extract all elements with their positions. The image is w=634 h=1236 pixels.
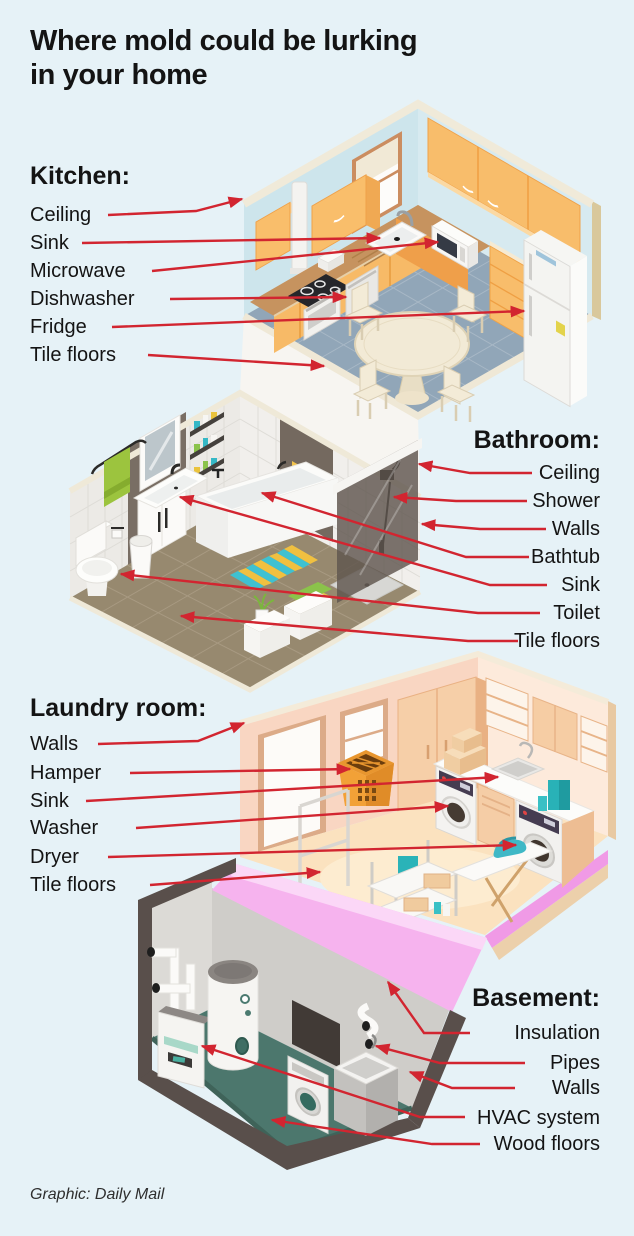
label-laundry-sink: Sink (30, 789, 69, 813)
label-basement-hvac: HVAC system (477, 1106, 600, 1130)
label-bathroom-walls: Walls (552, 517, 600, 541)
label-kitchen-tile-floors: Tile floors (30, 343, 116, 367)
label-kitchen-dishwasher: Dishwasher (30, 287, 134, 311)
label-bathroom-ceiling: Ceiling (539, 461, 600, 485)
label-laundry-hamper: Hamper (30, 761, 101, 785)
label-kitchen-ceiling: Ceiling (30, 203, 91, 227)
source-credit: Graphic: Daily Mail (30, 1186, 164, 1204)
kitchen-right-wall-edge (592, 201, 601, 320)
detergent-box-shade (559, 780, 570, 810)
laundry-heading: Laundry room: (30, 694, 206, 723)
water-heater (208, 960, 258, 1070)
label-bathroom-bathtub: Bathtub (531, 545, 600, 569)
page-title: Where mold could be lurking in your home (30, 24, 417, 92)
label-basement-walls: Walls (552, 1076, 600, 1100)
label-bathroom-sink: Sink (561, 573, 600, 597)
label-bathroom-tile-floors: Tile floors (514, 629, 600, 653)
bathroom-heading: Bathroom: (474, 426, 600, 455)
arrow-bathroom-ceiling (419, 464, 532, 473)
kitchen-heading: Kitchen: (30, 162, 130, 191)
label-laundry-walls: Walls (30, 732, 78, 756)
arrow-bathroom-walls (422, 524, 546, 529)
label-laundry-washer: Washer (30, 816, 98, 840)
trash-can (130, 536, 152, 579)
title-line-2: in your home (30, 58, 417, 92)
label-kitchen-sink: Sink (30, 231, 69, 255)
label-kitchen-microwave: Microwave (30, 259, 126, 283)
infographic: Where mold could be lurking in your home… (0, 0, 634, 1236)
label-kitchen-fridge: Fridge (30, 315, 87, 339)
label-basement-insulation: Insulation (514, 1021, 600, 1045)
label-basement-wood-floors: Wood floors (494, 1132, 600, 1156)
label-laundry-dryer: Dryer (30, 845, 79, 869)
air-purifier (290, 182, 309, 274)
laundry-door (258, 715, 326, 852)
label-basement-pipes: Pipes (550, 1051, 600, 1075)
label-bathroom-toilet: Toilet (553, 601, 600, 625)
laundry-right-wall-edge (608, 701, 616, 840)
title-line-1: Where mold could be lurking (30, 24, 417, 58)
fridge (524, 230, 587, 407)
label-laundry-tile-floors: Tile floors (30, 873, 116, 897)
detergent-can (538, 796, 547, 811)
label-bathroom-shower: Shower (532, 489, 600, 513)
arrow-laundry-walls (98, 723, 244, 744)
basement-heading: Basement: (472, 984, 600, 1013)
arrow-kitchen-ceiling (108, 199, 242, 215)
